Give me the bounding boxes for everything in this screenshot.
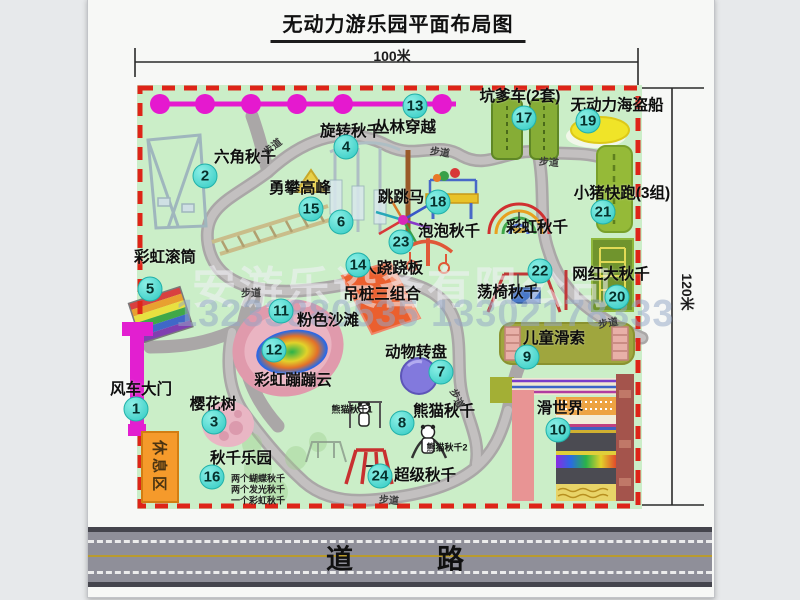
- dimension-top-label: 100米: [373, 46, 410, 66]
- attraction-badge-15: 15: [299, 197, 324, 222]
- attraction-badge-24: 24: [368, 464, 393, 489]
- walkway-label-1: 步道: [429, 142, 451, 160]
- attraction-badge-7: 7: [429, 360, 454, 385]
- walkway-label-4: 步道: [597, 313, 619, 331]
- attraction-badge-18: 18: [426, 190, 451, 215]
- walkway-label-3: 步道: [241, 285, 261, 300]
- attraction-label-7: 动物转盘: [385, 340, 447, 362]
- attraction-label-18: 跳跳马: [378, 185, 425, 207]
- attraction-label-12: 彩虹蹦蹦云: [254, 368, 332, 390]
- swing-note-2: 一个彩虹秋千: [231, 494, 285, 507]
- attraction-badge-3: 3: [202, 410, 227, 435]
- rest-area-label: 休息区: [150, 440, 171, 494]
- sub-label-0: 熊猫秋千1: [331, 403, 372, 416]
- attraction-badge-12: 12: [262, 338, 287, 363]
- attraction-label-11: 粉色沙滩: [297, 308, 359, 330]
- attraction-badge-2: 2: [193, 164, 218, 189]
- attraction-badge-16: 16: [200, 465, 225, 490]
- road-label: 道 路: [326, 538, 474, 577]
- attraction-label-14: 吊桩三组合: [343, 282, 421, 304]
- attraction-label-23: 泡泡秋千: [418, 219, 480, 241]
- attraction-label-24: 超级秋千: [394, 463, 456, 485]
- attraction-badge-4: 4: [334, 135, 359, 160]
- page-title: 无动力游乐园平面布局图: [271, 8, 526, 43]
- attraction-badge-23: 23: [389, 230, 414, 255]
- attraction-label-10: 滑世界: [537, 396, 584, 418]
- attraction-badge-1: 1: [124, 397, 149, 422]
- attraction-badge-8: 8: [390, 411, 415, 436]
- attraction-label-彩虹秋千: 彩虹秋千: [506, 215, 568, 237]
- attraction-label-20: 网红大秋千: [572, 262, 650, 284]
- attraction-badge-22: 22: [528, 259, 553, 284]
- attraction-label-17: 坑爹车(2套): [480, 84, 561, 106]
- attraction-badge-11: 11: [269, 299, 294, 324]
- attraction-badge-17: 17: [512, 106, 537, 131]
- attraction-label-1: 风车大门: [110, 377, 172, 399]
- screenshot-stage: 无动力游乐园平面布局图 100米 120米: [0, 0, 800, 600]
- attraction-label-13: 丛林穿越: [374, 115, 436, 137]
- attraction-label-15: 勇攀高峰: [269, 176, 331, 198]
- attraction-label-16: 秋千乐园: [210, 446, 272, 468]
- attraction-badge-9: 9: [515, 345, 540, 370]
- dimension-right-label: 120米: [677, 273, 697, 310]
- attraction-badge-6: 6: [329, 210, 354, 235]
- attraction-label-5: 彩虹滚筒: [134, 245, 196, 267]
- attraction-badge-19: 19: [576, 109, 601, 134]
- attraction-badge-10: 10: [546, 418, 571, 443]
- road: 道 路: [88, 527, 712, 587]
- attraction-badge-20: 20: [605, 285, 630, 310]
- attraction-label-21: 小猪快跑(3组): [574, 181, 670, 203]
- attraction-badge-14: 14: [346, 253, 371, 278]
- sub-label-1: 熊猫秋千2: [426, 441, 467, 454]
- attraction-badge-5: 5: [138, 277, 163, 302]
- walkway-label-6: 步道: [378, 491, 399, 508]
- attraction-label-22: 荡椅秋千: [477, 280, 539, 302]
- walkway-label-2: 步道: [538, 153, 559, 170]
- attraction-badge-13: 13: [403, 94, 428, 119]
- attraction-badge-21: 21: [591, 200, 616, 225]
